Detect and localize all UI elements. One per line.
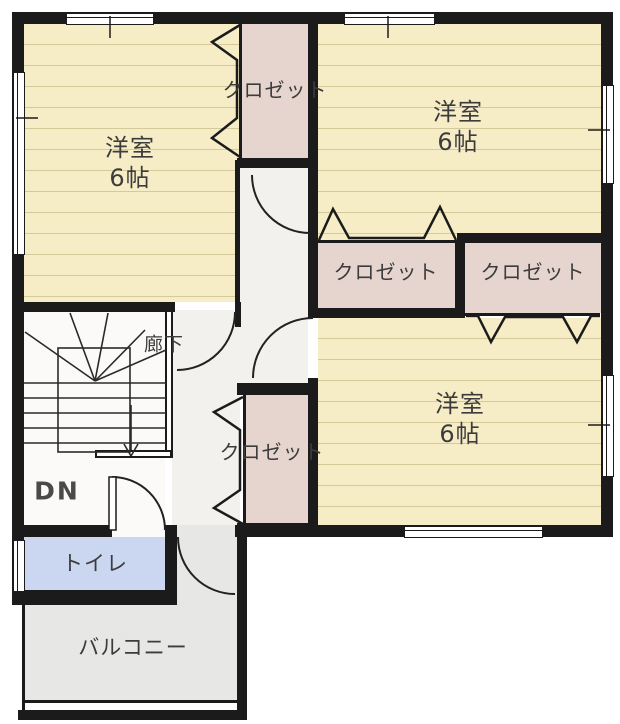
- bifold-closet-middle-left: [319, 207, 456, 240]
- toilet-label: トイレ: [62, 554, 128, 575]
- bedroom-top-right-label: 洋室: [433, 100, 483, 124]
- bedroom-mid-right-label: 洋室: [435, 392, 485, 416]
- bedroom-top-right-size: 6帖: [437, 130, 478, 154]
- bedroom-mid-right-size: 6帖: [439, 422, 480, 446]
- hallway-label: 廊下: [144, 336, 184, 355]
- door-arcs: [112, 175, 313, 594]
- door-arc-balcony: [178, 537, 235, 594]
- door-arc-bedroom-top-left: [177, 312, 235, 370]
- bifold-closet-middle-right: [466, 316, 600, 342]
- stairs-down-label: DN: [34, 479, 80, 504]
- stair-winder-line: [25, 332, 95, 381]
- closet-top-left-label: クロゼット: [223, 80, 328, 100]
- door-leaf-toilet: [109, 477, 116, 530]
- stair-winder-line: [70, 313, 95, 381]
- closet-bottom-label: クロゼット: [220, 442, 325, 462]
- bedroom-top-left-size: 6帖: [109, 166, 150, 190]
- door-arc-bedroom-mid-right: [253, 318, 313, 378]
- door-arc-toilet: [112, 477, 165, 530]
- closet-middle-left-label: クロゼット: [334, 262, 439, 282]
- door-arc-bedroom-top-right: [252, 175, 310, 233]
- plan-linework: [0, 0, 620, 724]
- bedroom-top-left-label: 洋室: [105, 136, 155, 160]
- balcony-label: バルコニー: [78, 638, 188, 659]
- floor-plan: 洋室 6帖 洋室 6帖 洋室 6帖 クロゼット クロゼット クロゼット クロゼッ…: [0, 0, 620, 724]
- closet-middle-right-label: クロゼット: [481, 262, 586, 282]
- stair-arrowhead: [131, 444, 138, 456]
